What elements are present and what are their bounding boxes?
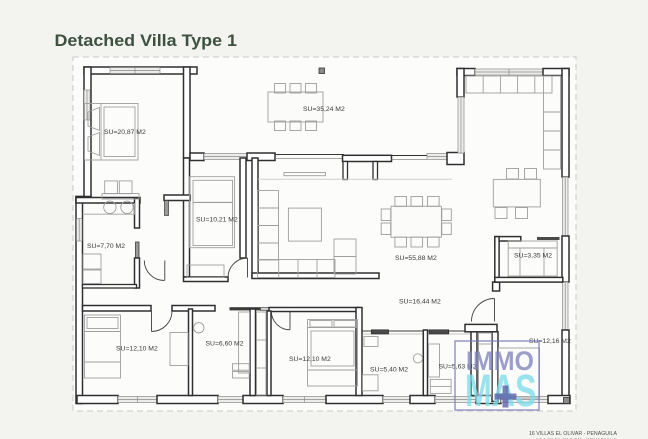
svg-text:Detached Villa Type 1: Detached Villa Type 1 xyxy=(55,32,237,50)
svg-text:MAS: MAS xyxy=(465,365,537,416)
svg-text:SU=3,35 M2: SU=3,35 M2 xyxy=(514,253,552,260)
svg-text:SU=20,87 M2: SU=20,87 M2 xyxy=(104,129,146,136)
svg-text:SU=5,40 M2: SU=5,40 M2 xyxy=(370,367,408,374)
svg-text:SU=12,10 M2: SU=12,10 M2 xyxy=(289,356,331,363)
svg-text:SU=7,70 M2: SU=7,70 M2 xyxy=(87,243,125,250)
svg-text:SU=55,88 M2: SU=55,88 M2 xyxy=(395,255,437,262)
svg-text:SU=12,10 M2: SU=12,10 M2 xyxy=(116,346,158,353)
svg-text:SU=16,44 M2: SU=16,44 M2 xyxy=(399,299,441,306)
svg-text:SU=6,60 M2: SU=6,60 M2 xyxy=(206,341,244,348)
svg-text:SU=35,24 M2: SU=35,24 M2 xyxy=(303,106,345,113)
svg-text:16 VILLAS EL OLIVAR - PENAGUIL: 16 VILLAS EL OLIVAR - PENAGUILA xyxy=(529,431,617,437)
svg-text:SU=10,21 M2: SU=10,21 M2 xyxy=(196,217,238,224)
